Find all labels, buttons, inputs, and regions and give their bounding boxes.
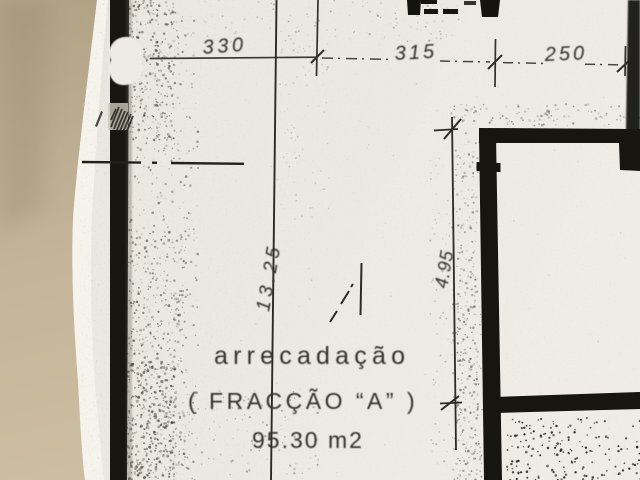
svg-text:330: 330 [202,34,248,59]
svg-text:315: 315 [394,41,437,65]
svg-text:250: 250 [543,43,587,67]
svg-text:arrecadação: arrecadação [214,342,410,370]
svg-text:95.30 m2: 95.30 m2 [252,427,364,453]
svg-text:( FRACÇÃO “A” ): ( FRACÇÃO “A” ) [188,388,418,414]
